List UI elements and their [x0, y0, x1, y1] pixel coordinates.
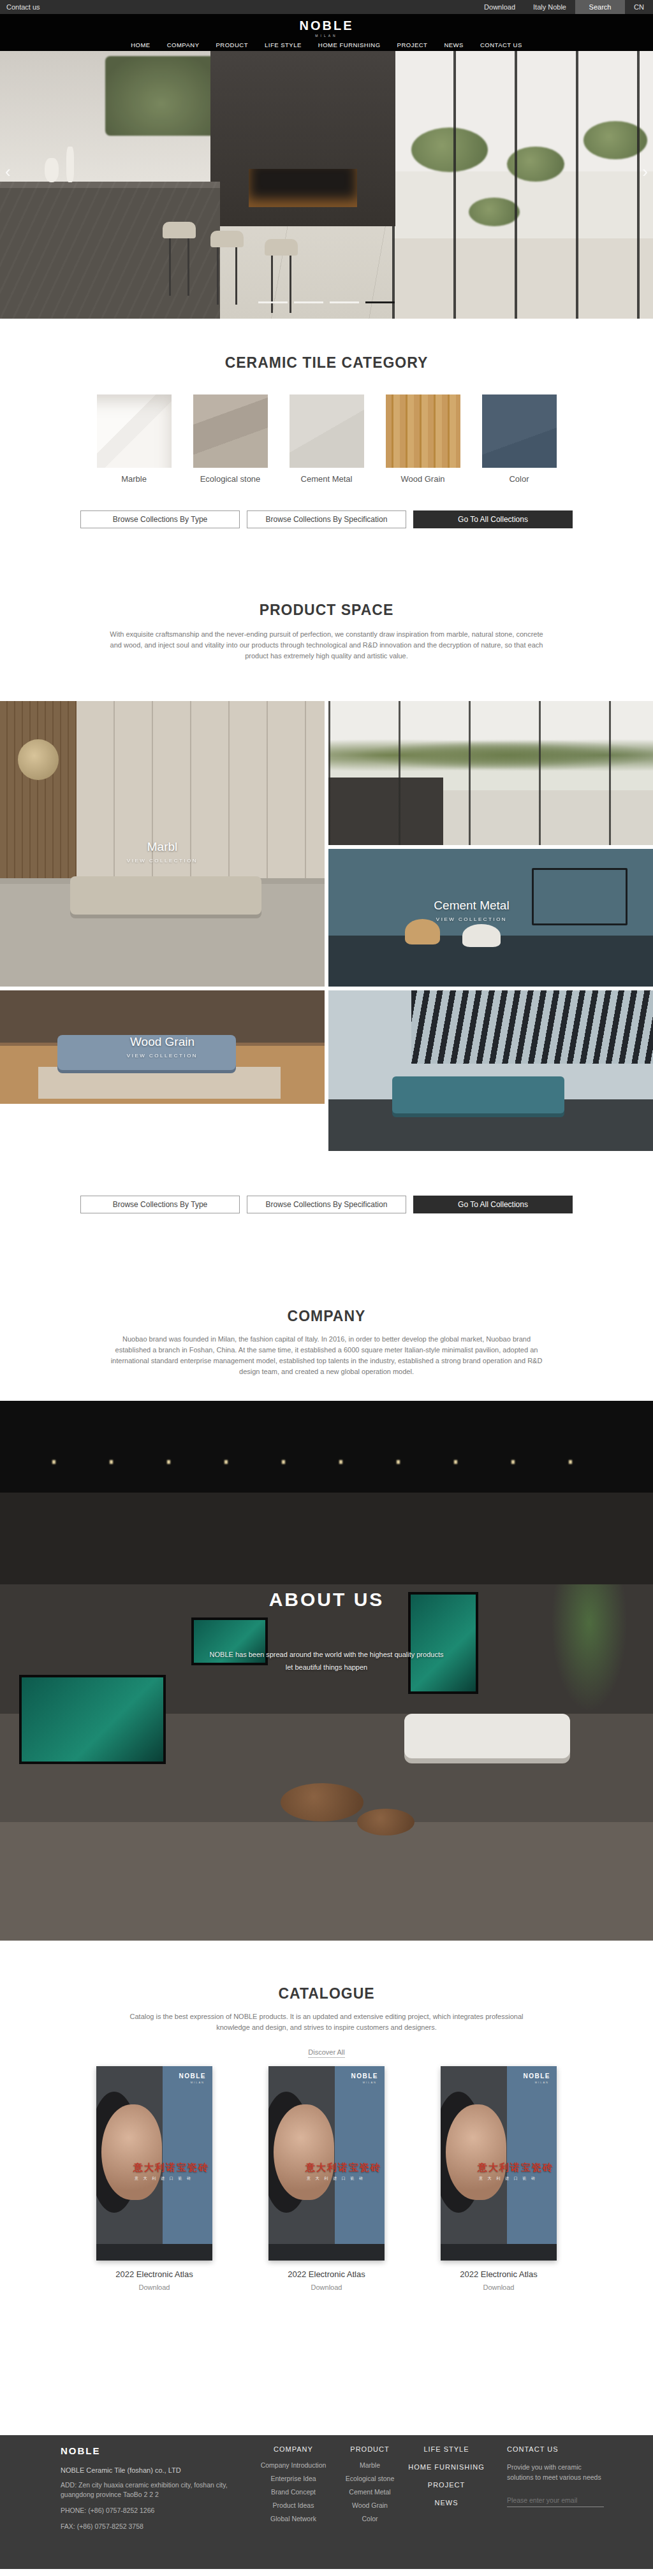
- footer-link-news[interactable]: NEWS: [405, 2499, 488, 2507]
- sofa-decor: [70, 876, 261, 915]
- catalogue-section: CATALOGUE Catalog is the best expression…: [0, 1985, 653, 2291]
- tile-cement-metal[interactable]: Cement Metal: [290, 394, 364, 484]
- catalogue-item-1-download[interactable]: Download: [96, 2283, 212, 2291]
- catalogue-item-1-title: 2022 Electronic Atlas: [96, 2269, 212, 2279]
- search-button[interactable]: Search: [575, 0, 625, 14]
- hero-carousel: ‹ ›: [0, 51, 653, 319]
- footer-fax: FAX: (+86) 0757-8252 3758: [61, 2522, 234, 2531]
- nav-item-project[interactable]: PROJECT: [397, 41, 428, 48]
- product-space-description: With exquisite craftsmanship and the nev…: [103, 629, 550, 662]
- footer-link-brand-concept[interactable]: Brand Concept: [252, 2488, 335, 2496]
- browse-by-specification-button-2[interactable]: Browse Collections By Specification: [247, 1196, 406, 1213]
- nav-item-news[interactable]: NEWS: [444, 41, 464, 48]
- top-utility-bar: Contact us Download Italy Noble Search C…: [0, 0, 653, 14]
- footer-logo: NOBLE: [61, 2445, 252, 2456]
- footer-link-marble[interactable]: Marble: [335, 2461, 405, 2469]
- footer-link-company-introduction[interactable]: Company Introduction: [252, 2461, 335, 2469]
- tv-screen-decor: [19, 1675, 166, 1764]
- category-section: CERAMIC TILE CATEGORY Marble Ecological …: [0, 319, 653, 528]
- tile-color-swatch: [482, 394, 557, 468]
- product-space-gallery: Marbl VIEW COLLECTION Cement Metal VIEW …: [0, 701, 653, 1151]
- footer-link-product-ideas[interactable]: Product Ideas: [252, 2501, 335, 2509]
- footer-address: ADD: Zen city huaxia ceramic exhibition …: [61, 2480, 234, 2500]
- footer-company-header[interactable]: COMPANY: [274, 2445, 313, 2453]
- catalogue-item-2-download[interactable]: Download: [268, 2283, 385, 2291]
- catalogue-item-2: NOBLE MILAN 意大利诺宝瓷砖 意 大 利 进 口 瓷 砖 2022 E…: [268, 2066, 385, 2291]
- footer-col-links: LIFE STYLE HOME FURNISHING PROJECT NEWS: [405, 2445, 488, 2569]
- tile-wood-grain-label: Wood Grain: [386, 474, 460, 484]
- poster-subline: 意 大 利 进 口 瓷 砖: [135, 2176, 193, 2182]
- model-photo: [101, 2104, 162, 2200]
- tile-wood-grain[interactable]: Wood Grain: [386, 394, 460, 484]
- catalogue-cover-1[interactable]: NOBLE MILAN 意大利诺宝瓷砖 意 大 利 进 口 瓷 砖: [96, 2066, 212, 2261]
- carousel-dash-4-active[interactable]: [365, 301, 395, 303]
- browse-by-type-button-2[interactable]: Browse Collections By Type: [80, 1196, 240, 1213]
- catalogue-item-3-download[interactable]: Download: [441, 2283, 557, 2291]
- nav-item-product[interactable]: PRODUCT: [216, 41, 248, 48]
- category-tiles: Marble Ecological stone Cement Metal Woo…: [0, 394, 653, 484]
- main-navigation: NOBLE MILAN HOME COMPANY PRODUCT LIFE ST…: [0, 14, 653, 51]
- catalogue-title: CATALOGUE: [0, 1985, 653, 2002]
- nav-item-company[interactable]: COMPANY: [167, 41, 200, 48]
- about-us-banner[interactable]: ABOUT US NOBLE has been spread around th…: [0, 1401, 653, 1941]
- catalogue-item-3-title: 2022 Electronic Atlas: [441, 2269, 557, 2279]
- tile-cement-metal-swatch: [290, 394, 364, 468]
- footer-link-project[interactable]: PROJECT: [405, 2481, 488, 2489]
- tile-color-label: Color: [482, 474, 557, 484]
- about-us-line1: NOBLE has been spread around the world w…: [0, 1648, 653, 1661]
- nav-item-home[interactable]: HOME: [131, 41, 150, 48]
- hero-fireplace: [210, 51, 395, 226]
- footer-col-product: PRODUCT Marble Ecological stone Cement M…: [335, 2445, 405, 2569]
- footer-link-life-style[interactable]: LIFE STYLE: [405, 2445, 488, 2453]
- go-to-all-collections-button-2[interactable]: Go To All Collections: [413, 1196, 573, 1213]
- poster-headline: 意大利诺宝瓷砖: [133, 2162, 209, 2174]
- hero-plant: [105, 56, 217, 136]
- space-card-cement-metal-subtitle: VIEW COLLECTION: [328, 916, 653, 922]
- footer-product-header[interactable]: PRODUCT: [350, 2445, 389, 2453]
- model-photo: [274, 2104, 334, 2200]
- footer-col-contact: CONTACT US Provide you with ceramic solu…: [507, 2445, 609, 2569]
- catalogue-covers: NOBLE MILAN 意大利诺宝瓷砖 意 大 利 进 口 瓷 砖 2022 E…: [0, 2066, 653, 2291]
- tile-wood-grain-swatch: [386, 394, 460, 468]
- category-title: CERAMIC TILE CATEGORY: [0, 354, 653, 372]
- about-us-line2: let beautiful things happen: [0, 1661, 653, 1674]
- language-switch[interactable]: CN: [625, 3, 653, 11]
- discover-all-link[interactable]: Discover All: [308, 2048, 344, 2058]
- space-card-showroom[interactable]: [328, 990, 653, 1151]
- footer-phone: PHONE: (+86) 0757-8252 1266: [61, 2506, 234, 2515]
- go-to-all-collections-button[interactable]: Go To All Collections: [413, 510, 573, 528]
- tile-cement-metal-label: Cement Metal: [290, 474, 364, 484]
- footer: NOBLE NOBLE Ceramic Tile (foshan) co., L…: [0, 2435, 653, 2569]
- company-title: COMPANY: [0, 1308, 653, 1325]
- nav-item-life-style[interactable]: LIFE STYLE: [265, 41, 302, 48]
- product-space-buttons: Browse Collections By Type Browse Collec…: [0, 1196, 653, 1213]
- tile-ecological-stone-label: Ecological stone: [193, 474, 268, 484]
- space-card-terrace[interactable]: [328, 701, 653, 845]
- brand-logo-text: NOBLE: [0, 18, 653, 33]
- footer-contact-header[interactable]: CONTACT US: [507, 2445, 559, 2453]
- tile-ecological-stone[interactable]: Ecological stone: [193, 394, 268, 484]
- poster-brand: NOBLE: [179, 2073, 207, 2080]
- product-space-title: PRODUCT SPACE: [0, 602, 653, 619]
- footer-link-cement-metal[interactable]: Cement Metal: [335, 2488, 405, 2496]
- space-card-wood-grain-title: Wood Grain: [0, 1035, 325, 1049]
- browse-by-specification-button[interactable]: Browse Collections By Specification: [247, 510, 406, 528]
- space-card-cement-metal[interactable]: Cement Metal VIEW COLLECTION: [328, 849, 653, 987]
- category-buttons: Browse Collections By Type Browse Collec…: [0, 510, 653, 528]
- ceiling-lights-decor: [52, 1460, 601, 1464]
- product-space-section: PRODUCT SPACE With exquisite craftsmansh…: [0, 602, 653, 1213]
- tile-ecological-stone-swatch: [193, 394, 268, 468]
- tile-color[interactable]: Color: [482, 394, 557, 484]
- catalogue-item-1: NOBLE MILAN 意大利诺宝瓷砖 意 大 利 进 口 瓷 砖 2022 E…: [96, 2066, 212, 2291]
- italy-noble-link[interactable]: Italy Noble: [533, 3, 566, 11]
- tile-marble[interactable]: Marble: [97, 394, 172, 484]
- company-section: COMPANY Nuobao brand was founded in Mila…: [0, 1308, 653, 1377]
- nav-item-home-furnishing[interactable]: HOME FURNISHING: [318, 41, 381, 48]
- catalogue-cover-2[interactable]: NOBLE MILAN 意大利诺宝瓷砖 意 大 利 进 口 瓷 砖: [268, 2066, 385, 2261]
- catalogue-item-2-title: 2022 Electronic Atlas: [268, 2269, 385, 2279]
- space-card-cement-metal-title: Cement Metal: [328, 899, 653, 913]
- brand-logo[interactable]: NOBLE MILAN: [0, 18, 653, 38]
- page: Contact us Download Italy Noble Search C…: [0, 0, 653, 2576]
- download-link[interactable]: Download: [484, 3, 515, 11]
- footer-link-wood-grain[interactable]: Wood Grain: [335, 2501, 405, 2509]
- carousel-next-icon[interactable]: ›: [642, 163, 648, 180]
- newsletter-email-input[interactable]: [507, 2496, 604, 2507]
- carousel-prev-icon[interactable]: ‹: [5, 163, 11, 180]
- space-card-wood-grain[interactable]: Wood Grain VIEW COLLECTION: [0, 990, 325, 1104]
- footer-company-name: NOBLE Ceramic Tile (foshan) co., LTD: [61, 2466, 252, 2474]
- catalogue-item-3: NOBLE MILAN 意大利诺宝瓷砖 意 大 利 进 口 瓷 砖 2022 E…: [441, 2066, 557, 2291]
- mirror-decor: [18, 739, 59, 780]
- contact-us-link[interactable]: Contact us: [6, 3, 40, 11]
- tile-marble-label: Marble: [97, 474, 172, 484]
- footer-link-enterprise-idea[interactable]: Enterprise Idea: [252, 2475, 335, 2482]
- footer-link-color[interactable]: Color: [335, 2515, 405, 2522]
- carousel-indicator: [0, 301, 653, 303]
- nav-menu: HOME COMPANY PRODUCT LIFE STYLE HOME FUR…: [0, 41, 653, 48]
- brand-logo-subtext: MILAN: [0, 34, 653, 38]
- nav-item-contact-us[interactable]: CONTACT US: [480, 41, 522, 48]
- footer-info: NOBLE NOBLE Ceramic Tile (foshan) co., L…: [61, 2445, 252, 2569]
- footer-link-home-furnishing[interactable]: HOME FURNISHING: [405, 2463, 488, 2471]
- footer-col-company: COMPANY Company Introduction Enterprise …: [252, 2445, 335, 2569]
- catalogue-description: Catalog is the best expression of NOBLE …: [122, 2011, 531, 2033]
- catalogue-cover-3[interactable]: NOBLE MILAN 意大利诺宝瓷砖 意 大 利 进 口 瓷 砖: [441, 2066, 557, 2261]
- browse-by-type-button[interactable]: Browse Collections By Type: [80, 510, 240, 528]
- carousel-dash-1[interactable]: [258, 301, 288, 303]
- footer-link-ecological-stone[interactable]: Ecological stone: [335, 2475, 405, 2482]
- space-card-marble[interactable]: Marbl VIEW COLLECTION: [0, 701, 325, 987]
- carousel-dash-3[interactable]: [330, 301, 359, 303]
- sofa-decor: [404, 1714, 570, 1758]
- space-card-wood-grain-subtitle: VIEW COLLECTION: [0, 1053, 325, 1059]
- space-card-marble-title: Marbl: [0, 840, 325, 854]
- company-description: Nuobao brand was founded in Milan, the f…: [106, 1334, 547, 1377]
- space-card-marble-subtitle: VIEW COLLECTION: [0, 858, 325, 864]
- model-photo: [446, 2104, 506, 2200]
- footer-contact-text: Provide you with ceramic solutions to me…: [507, 2462, 609, 2482]
- footer-link-global-network[interactable]: Global Network: [252, 2515, 335, 2522]
- about-us-title: ABOUT US: [0, 1589, 653, 1610]
- tile-marble-swatch: [97, 394, 172, 468]
- carousel-dash-2[interactable]: [294, 301, 323, 303]
